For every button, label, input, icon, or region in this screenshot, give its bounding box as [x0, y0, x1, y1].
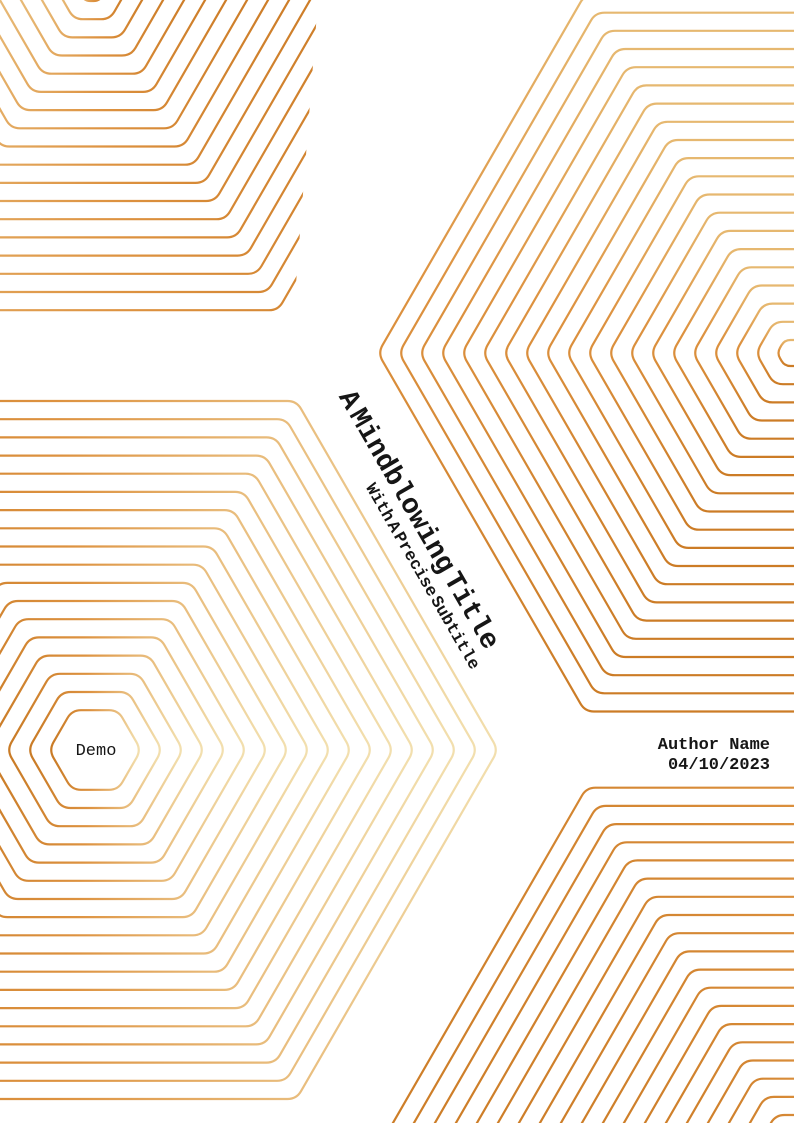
hexagon-center-label: Demo	[36, 742, 156, 761]
publish-date: 04/10/2023	[658, 756, 770, 776]
author-block: Author Name 04/10/2023	[658, 736, 770, 776]
hexagon-pattern-canvas	[0, 0, 794, 1123]
hexagons-top-left	[0, 0, 462, 310]
author-name: Author Name	[658, 736, 770, 756]
